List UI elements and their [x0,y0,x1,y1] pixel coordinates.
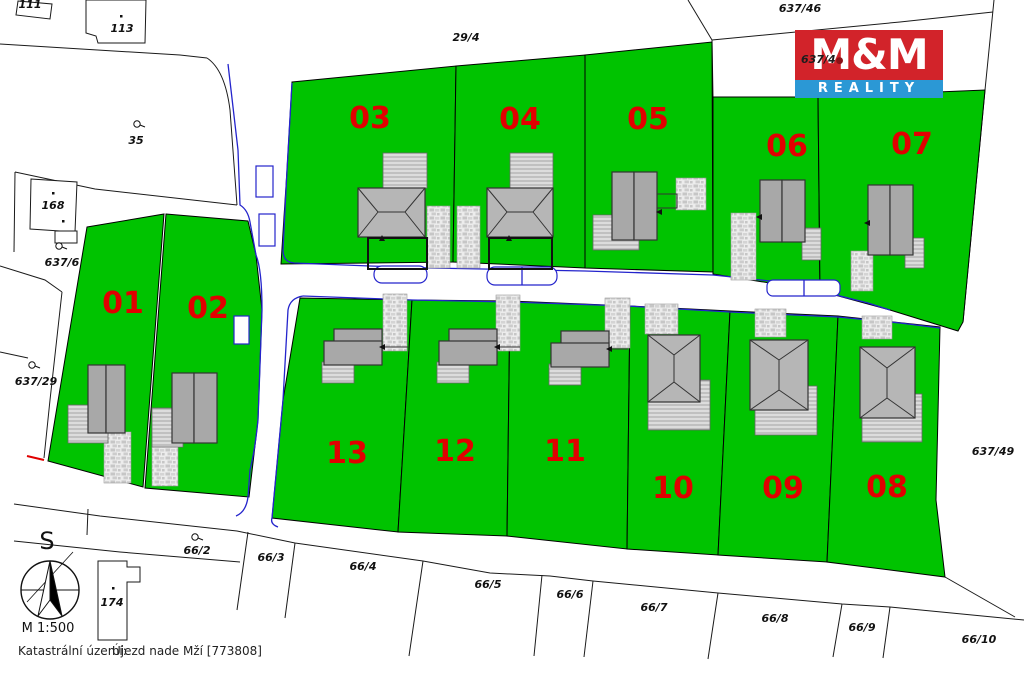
parcel-point-icon [134,121,145,127]
parcel-label-111: 111 [19,0,42,11]
red-boundary-tick [27,456,44,460]
house-02 [194,373,217,443]
compass-needle-icon [50,561,62,616]
footer-caption: Katastrální území: Újezd nade Mží [77380… [18,643,262,658]
site-plan-map: 01 02 03 04 05 06 07 08 09 10 11 12 13 1… [0,0,1024,675]
parcel-label-66-7: 66/7 [641,601,668,614]
house-07 [890,185,913,255]
parcel-label-637-29: 637/29 [15,375,58,388]
driveway-plot-09 [755,309,786,337]
parcel-label-under-logo: 637/4● [801,53,844,66]
parcel-point-icon [192,534,203,540]
driveway-plot-06 [731,213,756,280]
building-168-annex [55,231,77,243]
plot-02-number: 02 [187,291,229,326]
parcel-label-113: 113 [111,22,134,35]
house-05 [612,172,634,240]
plot-04-number: 04 [499,102,541,137]
parcel-label-637-46: 637/46 [779,2,822,15]
house-06 [782,180,805,242]
plot-07-number: 07 [891,127,933,162]
driveway-plot-12 [496,295,520,351]
plot-01-number: 01 [102,286,144,321]
driveway-plot-03 [427,206,450,268]
parcel-label-66-3: 66/3 [258,551,285,564]
parcel-label-66-2: 66/2 [184,544,211,557]
house-01 [106,365,125,433]
parcel-label-66-4: 66/4 [350,560,377,573]
cadastral-area-value: Újezd nade Mží [773808] [112,643,262,658]
parking-bay [234,316,249,344]
driveway-plot-05 [676,178,706,210]
building-point-icon [112,587,115,590]
cadastral-area-label: Katastrální území: [18,644,127,658]
logo-subtitle: REALITY [795,80,943,98]
plot-06-number: 06 [766,129,808,164]
annex-03 [383,153,427,188]
plot-09-number: 09 [762,471,804,506]
driveway-plot-04 [457,206,480,268]
plot-05-number: 05 [627,102,669,137]
building-point-icon [62,220,65,223]
compass-rose: S M 1:500 [21,527,79,636]
map-scale: M 1:500 [22,621,75,636]
house-02 [172,373,194,443]
house-05 [634,172,657,240]
parcel-label-29-4: 29/4 [453,31,480,44]
house-12 [439,341,497,365]
plot-11-number: 11 [544,434,586,469]
building-point-icon [120,15,123,18]
house-13 [324,341,382,365]
parcel-label-66-10: 66/10 [962,633,997,646]
parcel-label-66-8: 66/8 [762,612,789,625]
north-label: S [39,527,54,555]
building-point-icon [52,192,55,195]
parcel-label-637-49: 637/49 [972,445,1015,458]
parking-bay [256,166,273,197]
parcel-label-66-5: 66/5 [475,578,502,591]
plot-03-number: 03 [349,101,391,136]
driveway-plot-10 [645,304,678,334]
house-01 [88,365,106,433]
site-plan: 01 02 03 04 05 06 07 08 09 10 11 12 13 1… [0,0,1024,675]
plot-12-number: 12 [434,434,476,469]
plot-08-number: 08 [866,470,908,505]
parcel-point-icon [56,243,67,249]
house-11 [551,343,609,367]
parcel-label-168: 168 [42,199,65,212]
parcel-point-icon: ● [836,56,844,66]
parcel-label-35: 35 [128,134,144,147]
driveway-plot-07 [851,251,873,291]
parcel-label-66-9: 66/9 [849,621,876,634]
parcel-point-icon [29,362,40,368]
parking-bay [259,214,275,246]
house-06 [760,180,782,242]
plot-13-number: 13 [326,436,368,471]
parcel-label-637-6: 637/6 [45,256,80,269]
driveway-plot-08 [862,316,892,339]
plot-10-number: 10 [652,471,694,506]
driveway-plot-13 [383,294,407,351]
house-07 [868,185,890,255]
annex-04 [510,153,553,188]
parcel-label-66-6: 66/6 [557,588,584,601]
parcel-label-174: 174 [101,596,124,609]
